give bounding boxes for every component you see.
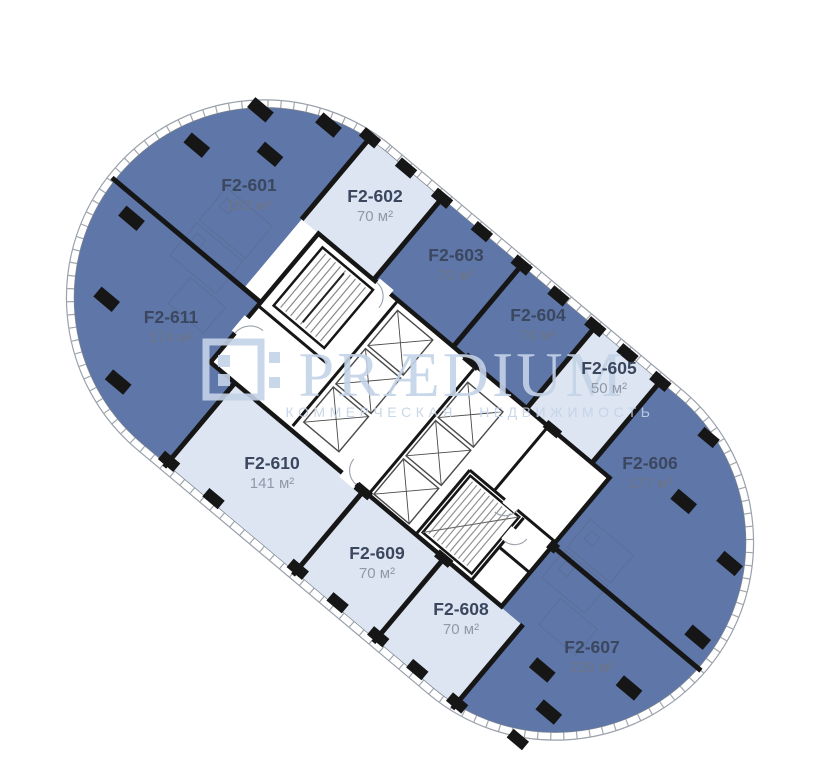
floorplan-svg: PRÆDIUM КОММЕРЧЕСКАЯ НЕДВИЖИМОСТЬ F2-601… — [0, 0, 817, 768]
unit-label-F2-601[interactable]: F2-601 163 м² — [221, 175, 277, 214]
brand-tagline: КОММЕРЧЕСКАЯ НЕДВИЖИМОСТЬ — [286, 404, 655, 420]
svg-text:F2-608: F2-608 — [433, 599, 489, 619]
unit-label-F2-611[interactable]: F2-611 174 м² — [144, 307, 199, 346]
svg-text:163 м²: 163 м² — [227, 197, 272, 214]
svg-text:F2-610: F2-610 — [244, 453, 300, 473]
svg-text:50 м²: 50 м² — [591, 380, 627, 397]
svg-text:174 м²: 174 м² — [149, 329, 194, 346]
svg-text:F2-607: F2-607 — [564, 637, 619, 657]
svg-text:177 м²: 177 м² — [628, 475, 673, 492]
svg-text:F2-606: F2-606 — [622, 453, 678, 473]
svg-text:70 м²: 70 м² — [357, 208, 393, 225]
unit-label-F2-606[interactable]: F2-606 177 м² — [622, 453, 678, 492]
floorplan-page: PRÆDIUM КОММЕРЧЕСКАЯ НЕДВИЖИМОСТЬ F2-601… — [0, 0, 817, 768]
svg-text:70 м²: 70 м² — [443, 621, 479, 638]
svg-text:F2-604: F2-604 — [510, 305, 566, 325]
svg-text:F2-601: F2-601 — [221, 175, 277, 195]
svg-text:F2-609: F2-609 — [349, 543, 405, 563]
svg-text:70 м²: 70 м² — [520, 327, 556, 344]
svg-text:F2-605: F2-605 — [581, 358, 637, 378]
svg-text:141 м²: 141 м² — [250, 475, 295, 492]
unit-label-F2-607[interactable]: F2-607 239 м² — [564, 637, 619, 676]
unit-label-F2-610[interactable]: F2-610 141 м² — [244, 453, 300, 492]
brand-text: PRÆDIUM — [299, 339, 626, 410]
svg-text:239 м²: 239 м² — [570, 659, 615, 676]
svg-text:F2-602: F2-602 — [347, 186, 403, 206]
svg-text:70 м²: 70 м² — [359, 565, 395, 582]
svg-text:F2-611: F2-611 — [144, 307, 199, 327]
svg-text:70 м²: 70 м² — [438, 267, 474, 284]
svg-text:F2-603: F2-603 — [428, 245, 484, 265]
